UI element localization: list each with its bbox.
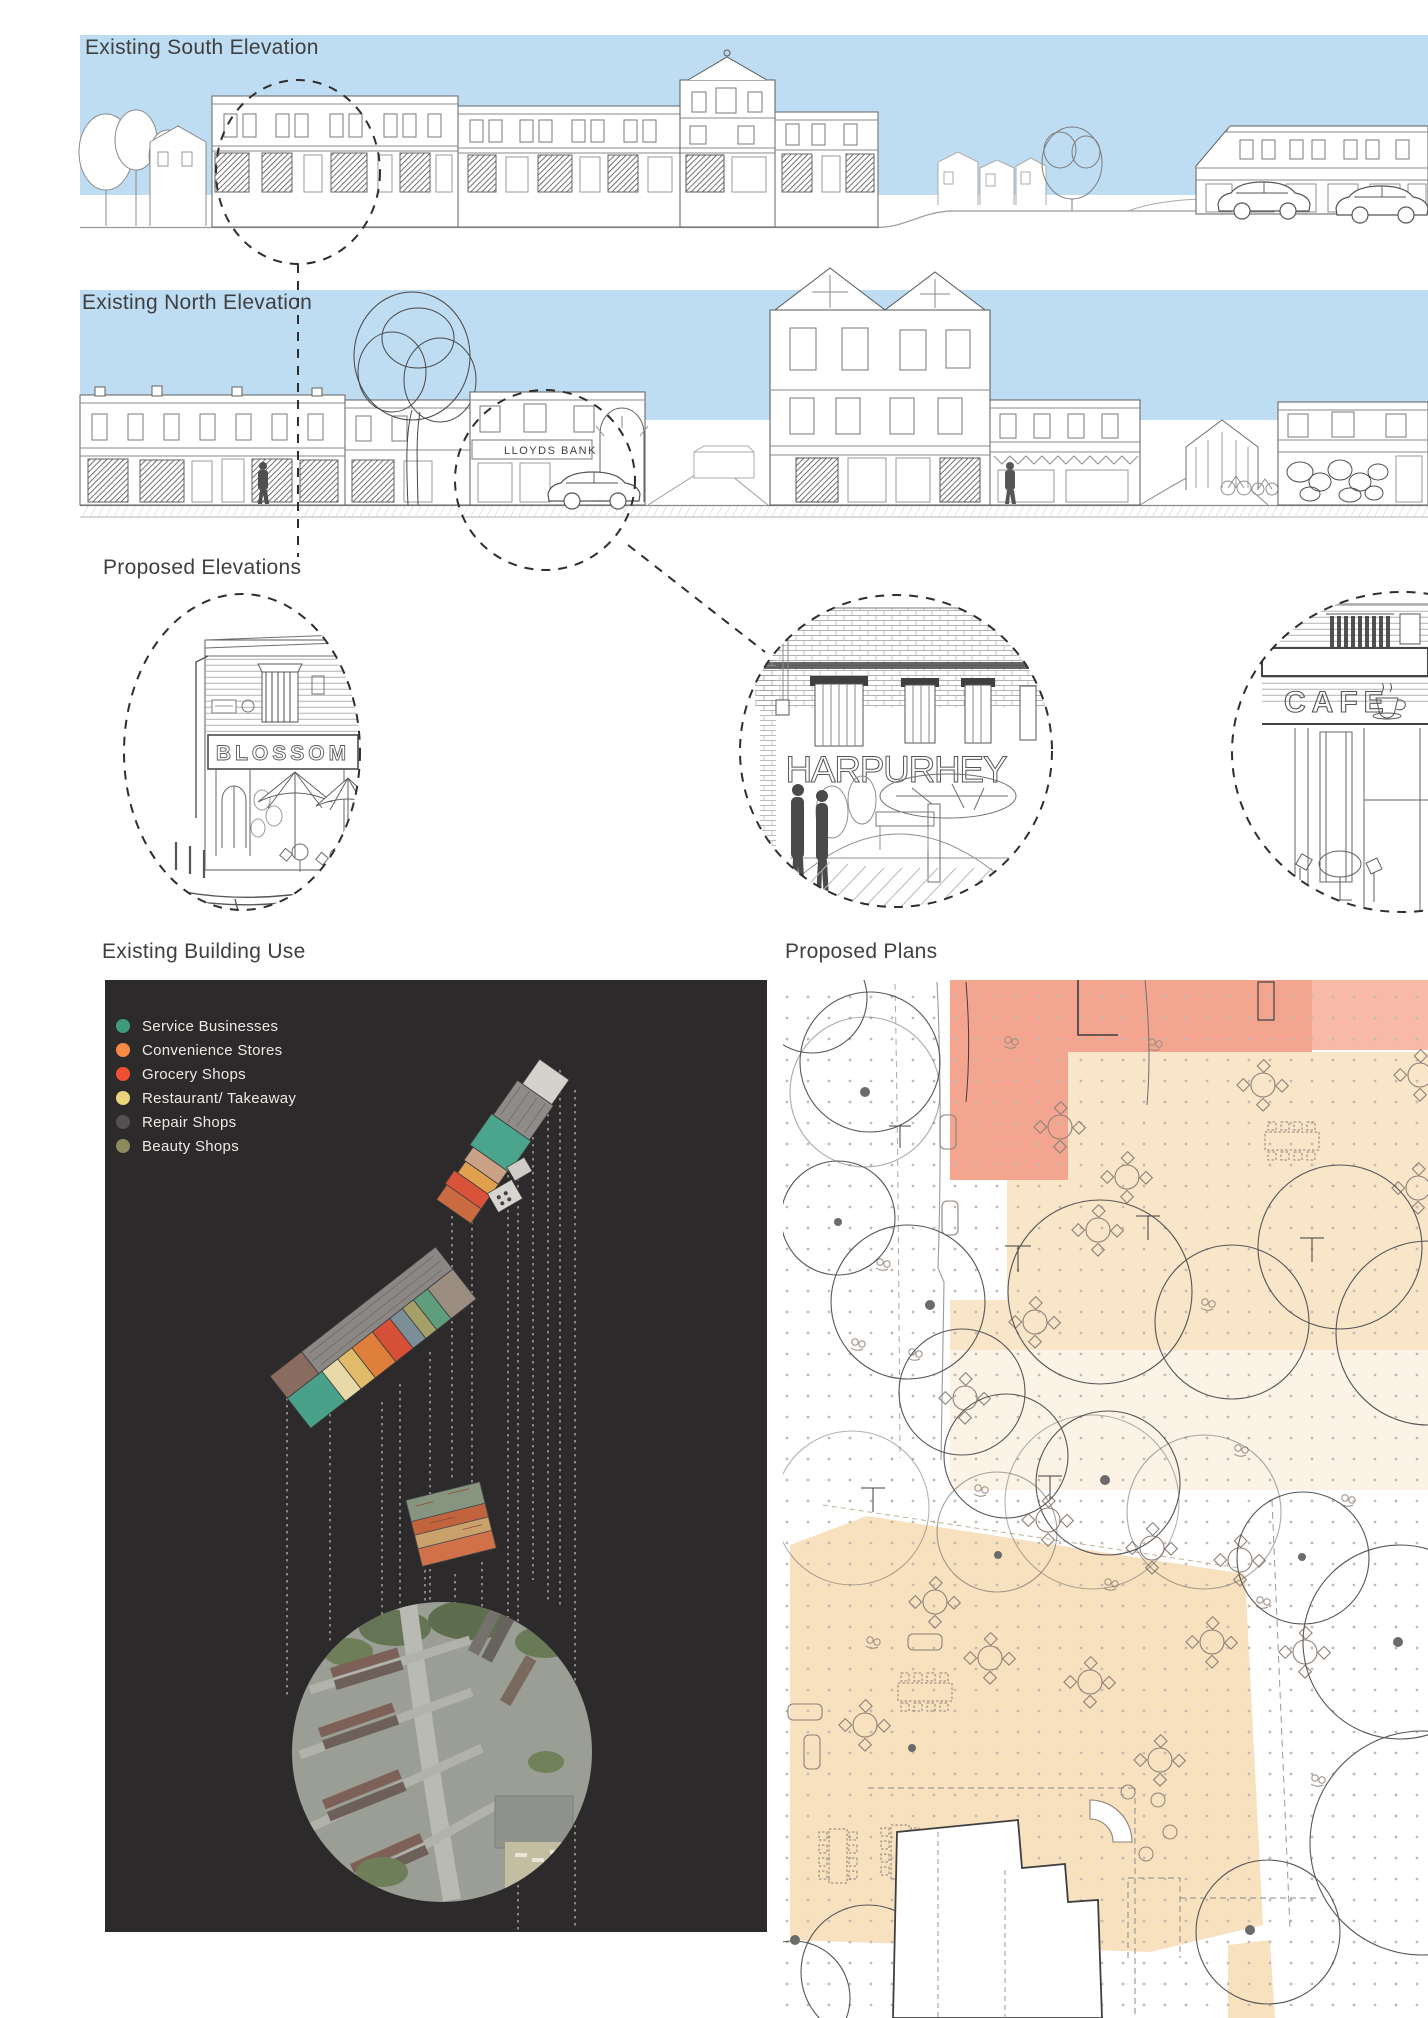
convenience-color-dot — [116, 1043, 130, 1057]
beauty-color-dot — [116, 1139, 130, 1153]
legend-item-convenience: Convenience Stores — [116, 1038, 296, 1062]
legend-item-restaurant: Restaurant/ Takeaway — [116, 1086, 296, 1110]
presentation-board: LLOYDS BANK — [0, 0, 1428, 2018]
cafe-sign-text: CAFE — [1284, 686, 1390, 719]
proposed-plans-panel — [736, 943, 1428, 2018]
building-use-legend: Service Businesses Convenience Stores Gr… — [116, 1014, 296, 1158]
proposed-detail-blossom: BLOSSOM — [124, 594, 378, 911]
south-elevation-sketch — [79, 35, 1428, 228]
repair-color-dot — [116, 1115, 130, 1129]
figure-silhouettes — [791, 784, 829, 902]
proposed-elevations-label: Proposed Elevations — [103, 556, 301, 580]
grocery-color-dot — [116, 1067, 130, 1081]
north-elevation-label: Existing North Elevation — [82, 291, 312, 315]
harpurhey-mural-text: HARPURHEY — [786, 749, 1011, 790]
restaurant-color-dot — [116, 1091, 130, 1105]
service-color-dot — [116, 1019, 130, 1033]
proposed-detail-cafe: CAFE — [1232, 592, 1428, 912]
south-elevation-label: Existing South Elevation — [85, 36, 319, 60]
blossom-sign-text: BLOSSOM — [216, 742, 350, 765]
legend-item-service: Service Businesses — [116, 1014, 296, 1038]
proposed-detail-harpurhey: HARPURHEY — [740, 595, 1052, 910]
north-detail-leader-line — [628, 545, 765, 652]
legend-item-grocery: Grocery Shops — [116, 1062, 296, 1086]
building-use-label: Existing Building Use — [102, 940, 306, 964]
legend-item-repair: Repair Shops — [116, 1110, 296, 1134]
proposed-plans-label: Proposed Plans — [785, 940, 937, 964]
legend-item-beauty: Beauty Shops — [116, 1134, 296, 1158]
lloyds-bank-sign: LLOYDS BANK — [504, 445, 597, 457]
